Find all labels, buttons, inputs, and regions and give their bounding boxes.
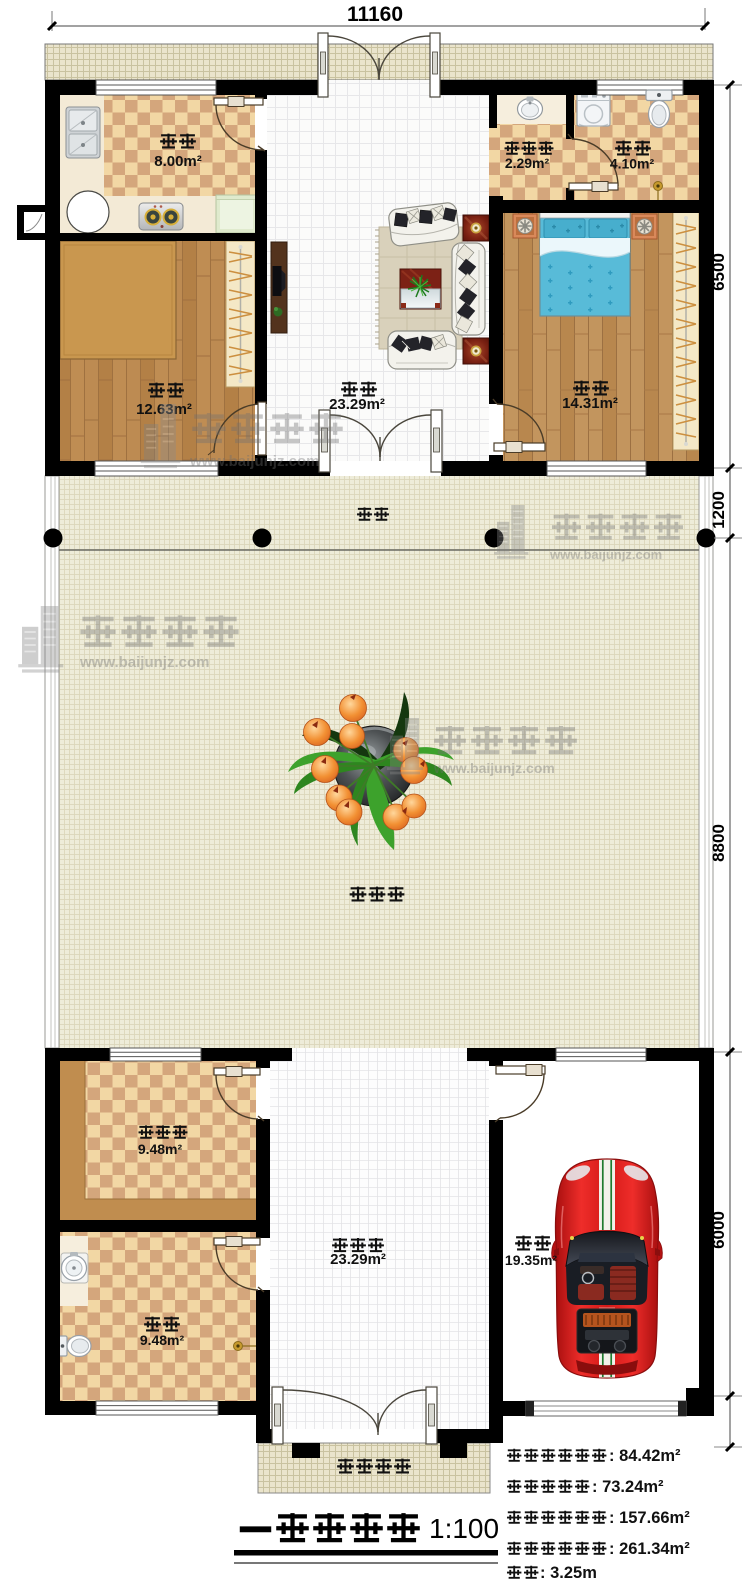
svg-text:: 3.25m: : 3.25m <box>540 1564 597 1581</box>
svg-text:: 157.66m²: : 157.66m² <box>609 1509 690 1527</box>
svg-text:www.baijunjz.com: www.baijunjz.com <box>189 453 319 470</box>
svg-text:www.baijunjz.com: www.baijunjz.com <box>433 760 555 776</box>
svg-text:6500: 6500 <box>709 253 728 291</box>
svg-text:: 73.24m²: : 73.24m² <box>592 1478 664 1496</box>
svg-text:1200: 1200 <box>709 491 728 529</box>
svg-text:www.baijunjz.com: www.baijunjz.com <box>79 654 209 671</box>
svg-text:19.35m²: 19.35m² <box>505 1252 557 1268</box>
svg-text:23.29m²: 23.29m² <box>329 396 385 413</box>
svg-text:www.baijunjz.com: www.baijunjz.com <box>549 547 662 562</box>
svg-text:4.10m²: 4.10m² <box>610 156 655 172</box>
svg-text:9.48m²: 9.48m² <box>140 1332 185 1348</box>
svg-text:8.00m²: 8.00m² <box>154 153 202 170</box>
svg-text:23.29m²: 23.29m² <box>330 1251 386 1268</box>
svg-text:11160: 11160 <box>347 3 403 26</box>
svg-text:: 84.42m²: : 84.42m² <box>609 1447 681 1465</box>
svg-text:8800: 8800 <box>709 824 728 862</box>
svg-text:: 261.34m²: : 261.34m² <box>609 1540 690 1558</box>
svg-text:14.31m²: 14.31m² <box>562 395 618 412</box>
svg-text:2.29m²: 2.29m² <box>505 155 550 171</box>
svg-text:1:100: 1:100 <box>429 1513 499 1544</box>
svg-text:6000: 6000 <box>709 1211 728 1249</box>
svg-text:9.48m²: 9.48m² <box>138 1141 183 1157</box>
